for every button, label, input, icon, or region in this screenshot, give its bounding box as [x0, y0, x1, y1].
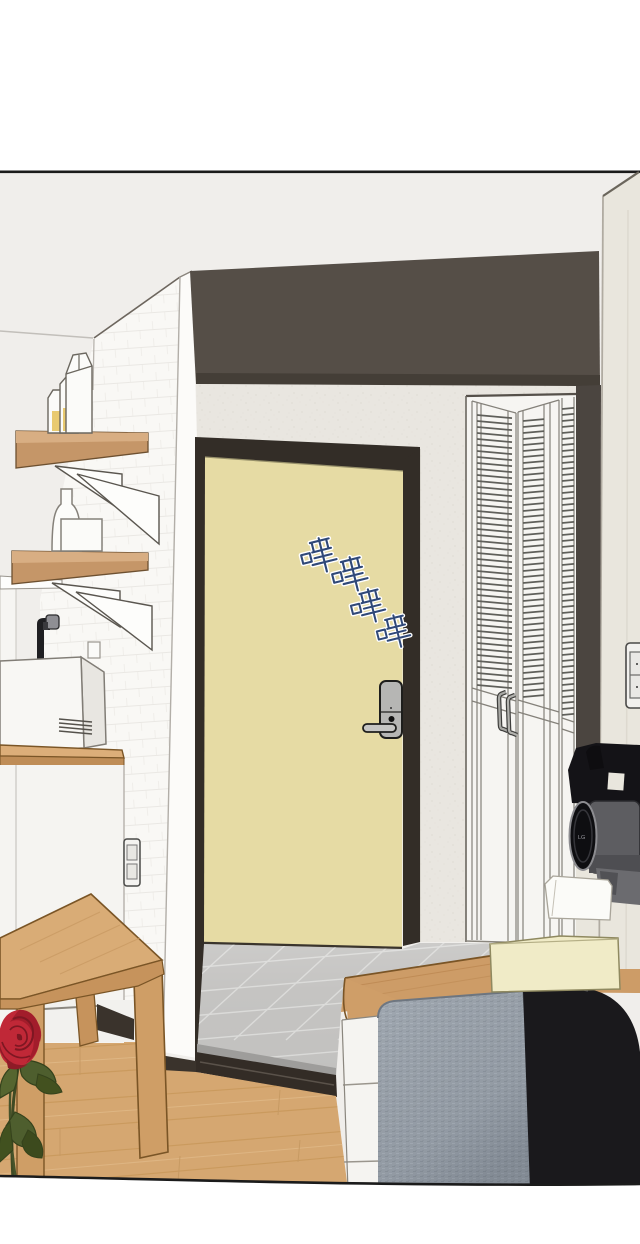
svg-text:LG: LG [578, 835, 585, 841]
